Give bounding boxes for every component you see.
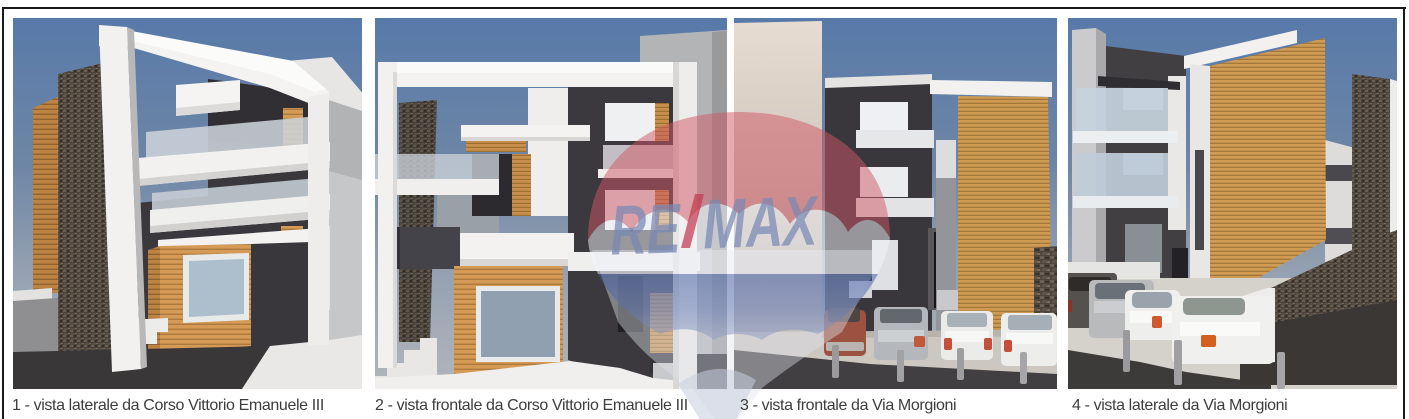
svg-text:RE: RE: [609, 189, 683, 269]
svg-text:MAX: MAX: [702, 181, 822, 263]
